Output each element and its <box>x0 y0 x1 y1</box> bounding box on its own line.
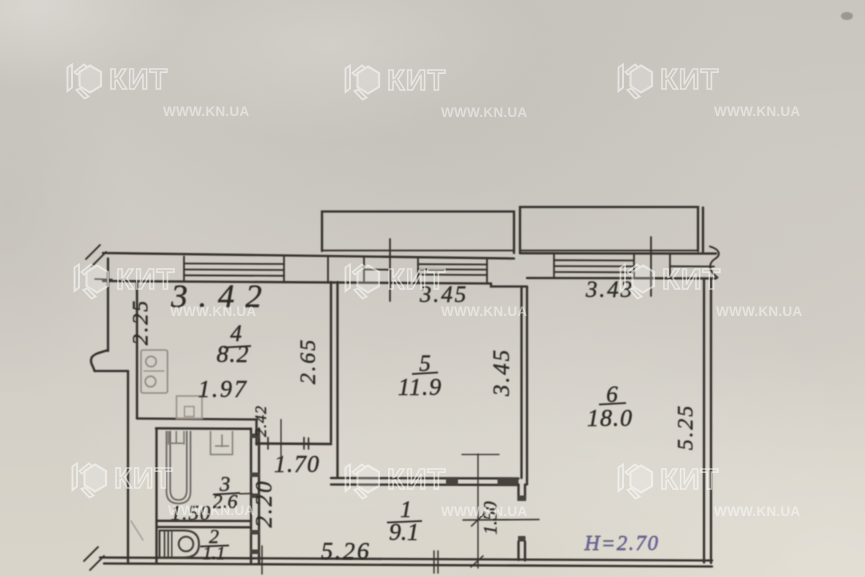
svg-text:9.1: 9.1 <box>389 520 419 546</box>
svg-text:8.2: 8.2 <box>217 342 250 368</box>
svg-text:5.25: 5.25 <box>673 404 698 451</box>
svg-text:2.25: 2.25 <box>128 299 153 346</box>
svg-text:5.26: 5.26 <box>321 539 371 565</box>
svg-text:3.45: 3.45 <box>489 348 514 397</box>
svg-text:18.0: 18.0 <box>587 406 633 432</box>
svg-text:3.43: 3.43 <box>585 277 634 302</box>
svg-text:1.1: 1.1 <box>203 543 226 563</box>
svg-text:1: 1 <box>400 497 412 522</box>
svg-text:1.97: 1.97 <box>198 377 248 403</box>
svg-text:1.70: 1.70 <box>274 452 320 478</box>
svg-text:11.9: 11.9 <box>398 375 442 401</box>
svg-text:2.20: 2.20 <box>252 479 277 527</box>
svg-text:2.42: 2.42 <box>253 405 270 437</box>
svg-text:2.65: 2.65 <box>295 338 320 385</box>
svg-text:Н=2.70: Н=2.70 <box>583 531 659 555</box>
